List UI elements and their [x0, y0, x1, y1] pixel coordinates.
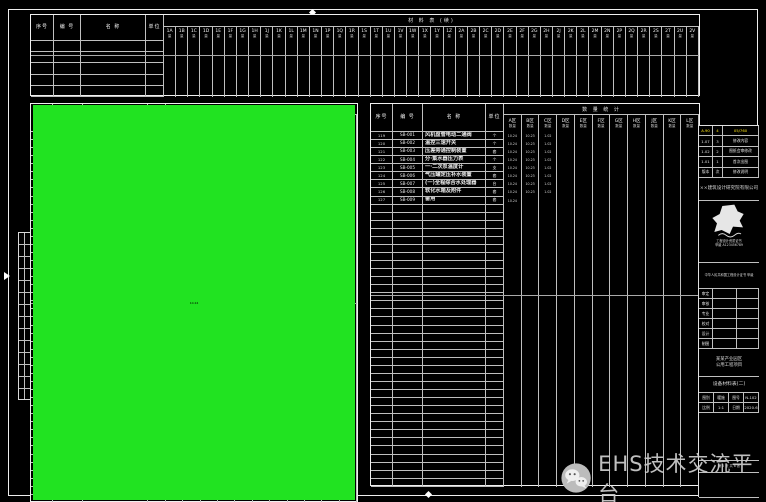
data-cell [646, 229, 664, 237]
data-cell [575, 390, 593, 398]
data-cell [664, 422, 682, 430]
row-no [371, 455, 393, 463]
data-cell [522, 366, 540, 374]
meta-row: 比例1:1日期2020.6 [699, 403, 759, 413]
data-cell [681, 326, 699, 334]
signature-value [713, 289, 737, 298]
data-cell [504, 438, 522, 446]
data-cell [681, 213, 699, 221]
revision-row: 1.022图纸会审修改 [699, 147, 759, 157]
revision-row: 版本次修改说明 [699, 168, 759, 178]
design-company-cell: ××建筑设计研究院有限公司 [699, 178, 759, 201]
data-cell [646, 237, 664, 245]
data-cell [539, 479, 557, 487]
row-sp [486, 446, 504, 454]
data-cell [593, 285, 611, 293]
table-row [371, 229, 699, 237]
row-sp [486, 277, 504, 285]
data-cell [664, 197, 682, 205]
data-cell [628, 148, 646, 156]
row-no [371, 269, 393, 277]
company-name: ××建筑设计研究院有限公司 [700, 186, 758, 192]
row-nm [423, 221, 486, 229]
data-cell [522, 479, 540, 487]
data-cell [557, 229, 575, 237]
row-nm [423, 326, 486, 334]
data-cell [646, 414, 664, 422]
data-cell [593, 180, 611, 188]
data-cell [602, 52, 614, 63]
watermark-text: EHS技术交流平台 [598, 448, 766, 502]
data-cell [395, 86, 407, 97]
quantity-value: 10.23 [526, 166, 535, 170]
meta-value: N-102 [744, 393, 759, 402]
data-cell [273, 86, 285, 97]
data-cell [664, 301, 682, 309]
row-nm [81, 86, 146, 97]
data-cell [504, 205, 522, 213]
data-cell [610, 148, 628, 156]
data-cell: 10.23 [522, 164, 540, 172]
data-cell [249, 41, 261, 52]
revision-row: 1.011首次出图 [699, 157, 759, 167]
data-cell: 10.23 [522, 148, 540, 156]
data-cell [664, 245, 682, 253]
row-sp: 套 [486, 188, 504, 196]
data-cell [626, 75, 638, 86]
row-nm: 压差旁通控制装置 [423, 148, 486, 156]
data-cell [395, 52, 407, 63]
data-cell [628, 261, 646, 269]
zone-column-header: 2T量 [662, 27, 674, 41]
table-row [371, 390, 699, 398]
data-cell [517, 86, 529, 97]
row-code [393, 463, 423, 471]
data-cell: 10.24 [504, 164, 522, 172]
data-cell [610, 205, 628, 213]
row-code: SB-009 [393, 197, 423, 205]
data-cell [610, 301, 628, 309]
zone-column-header: 1Q量 [334, 27, 346, 41]
data-cell [650, 41, 662, 52]
data-cell [557, 334, 575, 342]
data-cell [273, 63, 285, 74]
data-cell [593, 229, 611, 237]
table-row [371, 350, 699, 358]
row-no [371, 463, 393, 471]
row-nm [423, 382, 486, 390]
data-cell [557, 350, 575, 358]
signature-row: 制图 [699, 339, 759, 349]
data-cell [492, 86, 504, 97]
data-cell [557, 197, 575, 205]
data-cell [628, 390, 646, 398]
data-cell: 10.24 [504, 148, 522, 156]
data-cell [553, 63, 565, 74]
data-cell [610, 390, 628, 398]
data-cell [593, 350, 611, 358]
row-code [393, 334, 423, 342]
data-cell [522, 358, 540, 366]
signature-date [737, 289, 759, 298]
data-cell [456, 75, 468, 86]
data-cell [517, 41, 529, 52]
data-cell [664, 132, 682, 140]
data-cell [225, 52, 237, 63]
tbl-right-header: 序号编 号名 称单位数 量 统 计A区数量B区数量C区数量D区数量E区数量F区数… [371, 104, 699, 132]
row-no [371, 309, 393, 317]
row-no: 124 [371, 172, 393, 180]
data-cell [557, 366, 575, 374]
quantity-value: 10.23 [526, 174, 535, 178]
row-no [371, 229, 393, 237]
data-cell [517, 52, 529, 63]
drawing-title: 设备材料表(二) [713, 382, 746, 388]
row-code [54, 75, 81, 86]
data-cell [557, 326, 575, 334]
row-code [393, 398, 423, 406]
data-cell [575, 358, 593, 366]
data-cell [628, 398, 646, 406]
signature-row-cells: 设计 [699, 329, 759, 338]
row-sp [146, 75, 164, 86]
data-cell [557, 285, 575, 293]
data-cell [176, 41, 188, 52]
data-cell [504, 471, 522, 479]
data-cell [638, 86, 650, 97]
data-cell [681, 221, 699, 229]
signature-row: 设计 [699, 329, 759, 339]
data-cell [504, 309, 522, 317]
data-cell [539, 261, 557, 269]
data-cell [593, 221, 611, 229]
zone-sublabel: 量 [302, 34, 306, 39]
signature-date [737, 319, 759, 328]
data-cell [589, 75, 601, 86]
data-cell [681, 164, 699, 172]
data-cell [610, 334, 628, 342]
data-cell [334, 41, 346, 52]
row-sp: 套 [486, 197, 504, 205]
signature-row-cells: 制图 [699, 339, 759, 348]
data-cell [610, 164, 628, 172]
data-cell [664, 406, 682, 414]
data-cell [593, 317, 611, 325]
row-no [31, 86, 54, 97]
data-cell [628, 301, 646, 309]
data-cell [646, 285, 664, 293]
row-sp [146, 41, 164, 52]
data-cell [646, 221, 664, 229]
data-cell [646, 140, 664, 148]
data-cell [504, 317, 522, 325]
data-cell [261, 75, 273, 86]
data-cell [557, 221, 575, 229]
data-cell [539, 422, 557, 430]
data-cell [575, 398, 593, 406]
data-cell [359, 75, 371, 86]
row-code [393, 326, 423, 334]
data-cell [575, 221, 593, 229]
data-cell: 10.23 [522, 172, 540, 180]
data-cell [504, 350, 522, 358]
data-cell [681, 140, 699, 148]
data-cell [610, 285, 628, 293]
data-cell [681, 237, 699, 245]
data-cell [646, 398, 664, 406]
data-cell [456, 63, 468, 74]
row-code [393, 261, 423, 269]
row-nm [423, 398, 486, 406]
zone-column-header: 2E量 [504, 27, 516, 41]
data-cell [610, 414, 628, 422]
row-no [31, 41, 54, 52]
data-cell [557, 269, 575, 277]
data-cell [557, 156, 575, 164]
meta-row-cells: 图别暖施图号N-102 [699, 393, 759, 402]
data-cell [565, 63, 577, 74]
zone-column-header: 2P量 [614, 27, 626, 41]
data-cell [638, 63, 650, 74]
data-cell [383, 41, 395, 52]
data-cell [628, 188, 646, 196]
data-cell [419, 41, 431, 52]
row-no: 119 [371, 132, 393, 140]
data-cell [628, 309, 646, 317]
data-cell [557, 430, 575, 438]
data-cell [522, 326, 540, 334]
data-cell [575, 148, 593, 156]
row-no [371, 213, 393, 221]
data-cell [261, 63, 273, 74]
row-nm [423, 237, 486, 245]
data-cell [492, 63, 504, 74]
data-cell [346, 86, 358, 97]
data-cell [602, 75, 614, 86]
signature-date [737, 339, 759, 348]
zone-sublabel: 数量 [544, 124, 551, 129]
meta-label: 图别 [699, 393, 714, 402]
table-row [371, 366, 699, 374]
row-code [393, 438, 423, 446]
data-cell [646, 317, 664, 325]
data-cell [593, 438, 611, 446]
data-cell [346, 41, 358, 52]
data-cell [681, 245, 699, 253]
data-cell [529, 63, 541, 74]
data-cell [646, 253, 664, 261]
data-cell [664, 438, 682, 446]
zone-sublabel: 量 [593, 34, 597, 39]
quantity-value: 10.23 [526, 142, 535, 146]
zone-column-header: A区数量 [504, 115, 522, 132]
data-cell [504, 237, 522, 245]
data-cell [664, 148, 682, 156]
stamp-caption: 甲级 A123456789 [699, 244, 759, 248]
row-nm [423, 301, 486, 309]
data-cell [610, 382, 628, 390]
data-cell [444, 63, 456, 74]
data-cell [444, 52, 456, 63]
column-header: 序号 [31, 15, 54, 41]
zone-column-header: K区数量 [664, 115, 682, 132]
row-code [393, 414, 423, 422]
row-no [371, 221, 393, 229]
certificate-text: 中华人民共和国工程设计证书 甲级 [703, 274, 756, 278]
data-cell [310, 52, 322, 63]
zone-sublabel: 量 [569, 34, 573, 39]
quantity-value: 10.24 [508, 182, 517, 186]
data-cell [664, 180, 682, 188]
data-cell [557, 140, 575, 148]
data-cell [610, 132, 628, 140]
revision-cell: 修改说明 [723, 168, 759, 177]
row-sp [486, 253, 504, 261]
row-sp: 个 [486, 132, 504, 140]
data-cell [557, 414, 575, 422]
row-code [393, 301, 423, 309]
quantity-value: 10.23 [526, 150, 535, 154]
data-cell [522, 430, 540, 438]
data-cell [646, 164, 664, 172]
data-cell [626, 86, 638, 97]
data-cell [664, 253, 682, 261]
data-cell [593, 382, 611, 390]
data-cell [664, 221, 682, 229]
data-cell [646, 430, 664, 438]
data-cell [628, 366, 646, 374]
data-cell [614, 52, 626, 63]
row-no: 126 [371, 188, 393, 196]
data-cell [610, 213, 628, 221]
row-nm [423, 334, 486, 342]
data-cell [444, 41, 456, 52]
data-cell [298, 41, 310, 52]
zone-sublabel: 量 [265, 34, 269, 39]
data-cell [522, 414, 540, 422]
row-nm [423, 317, 486, 325]
quantity-value: 10.24 [508, 190, 517, 194]
row-nm [423, 446, 486, 454]
qualification-stamp-cell: 工程设计资质证书甲级 A123456789 [699, 201, 759, 263]
data-cell [646, 382, 664, 390]
row-nm [423, 471, 486, 479]
zone-sublabel: 量 [520, 34, 524, 39]
row-nm [423, 269, 486, 277]
data-cell [383, 86, 395, 97]
data-cell [664, 326, 682, 334]
zone-column-header: D区数量 [557, 115, 575, 132]
zone-sublabel: 量 [496, 34, 500, 39]
revision-cell: 1.07 [699, 136, 713, 145]
zone-column-header: 1M量 [298, 27, 310, 41]
data-cell [541, 52, 553, 63]
data-cell [557, 342, 575, 350]
data-cell [681, 188, 699, 196]
data-cell [589, 86, 601, 97]
data-cell [593, 406, 611, 414]
data-cell [675, 75, 687, 86]
data-cell [334, 63, 346, 74]
quantity-value: 1.02 [544, 158, 551, 162]
revision-cell: 4 [713, 126, 723, 135]
row-nm: 备用 [423, 197, 486, 205]
data-cell [522, 422, 540, 430]
data-cell [517, 75, 529, 86]
zone-sublabel: 量 [314, 34, 318, 39]
data-cell [610, 277, 628, 285]
strip-line [24, 233, 25, 399]
data-cell [371, 41, 383, 52]
data-cell [614, 86, 626, 97]
column-header: 名 称 [423, 104, 486, 132]
data-cell [593, 309, 611, 317]
revision-row: 1.073修改内容 [699, 136, 759, 146]
data-cell [522, 455, 540, 463]
data-cell [650, 86, 662, 97]
data-cell [681, 422, 699, 430]
zone-sublabel: 数量 [668, 124, 675, 129]
row-code [393, 309, 423, 317]
revision-cell: 次 [713, 168, 723, 177]
schedule-title: 数 量 统 计 [504, 104, 699, 115]
signature-value [713, 319, 737, 328]
data-cell [593, 374, 611, 382]
data-cell [504, 479, 522, 487]
data-cell [610, 140, 628, 148]
table-row: 122SB-004分·集水器压力表个10.2410.231.02 [371, 156, 699, 164]
data-cell [468, 52, 480, 63]
row-code [393, 358, 423, 366]
zone-sublabel: 数量 [651, 124, 658, 129]
zone-sublabel: 数量 [580, 124, 587, 129]
quantity-value: 10.23 [526, 158, 535, 162]
row-no [371, 446, 393, 454]
data-cell [628, 277, 646, 285]
data-cell [310, 75, 322, 86]
data-cell [237, 52, 249, 63]
row-code [393, 317, 423, 325]
data-cell [610, 269, 628, 277]
data-cell [557, 422, 575, 430]
meta-label: 比例 [699, 403, 714, 412]
quantity-value: 10.24 [508, 199, 517, 203]
row-code [393, 390, 423, 398]
signature-row-cells: 审核 [699, 299, 759, 308]
zone-column-header: 1W量 [407, 27, 419, 41]
data-cell [522, 471, 540, 479]
table-row [371, 253, 699, 261]
data-cell [681, 172, 699, 180]
row-sp [486, 438, 504, 446]
row-code [393, 366, 423, 374]
row-sp [486, 229, 504, 237]
data-cell [593, 422, 611, 430]
data-cell [334, 75, 346, 86]
data-cell [577, 86, 589, 97]
data-cell [628, 422, 646, 430]
row-nm: 气压罐定压补水装置 [423, 172, 486, 180]
data-column-headers: 1A量1B量1C量1D量1E量1F量1G量1H量1J量1K量1L量1M量1N量1… [164, 27, 699, 41]
data-cell [681, 197, 699, 205]
data-cell [557, 309, 575, 317]
row-nm [423, 479, 486, 487]
row-sp [146, 63, 164, 74]
data-column-headers: A区数量B区数量C区数量D区数量E区数量F区数量G区数量H区数量J区数量K区数量… [504, 115, 699, 132]
row-nm [81, 52, 146, 63]
zone-sublabel: 量 [423, 34, 427, 39]
row-code [393, 374, 423, 382]
